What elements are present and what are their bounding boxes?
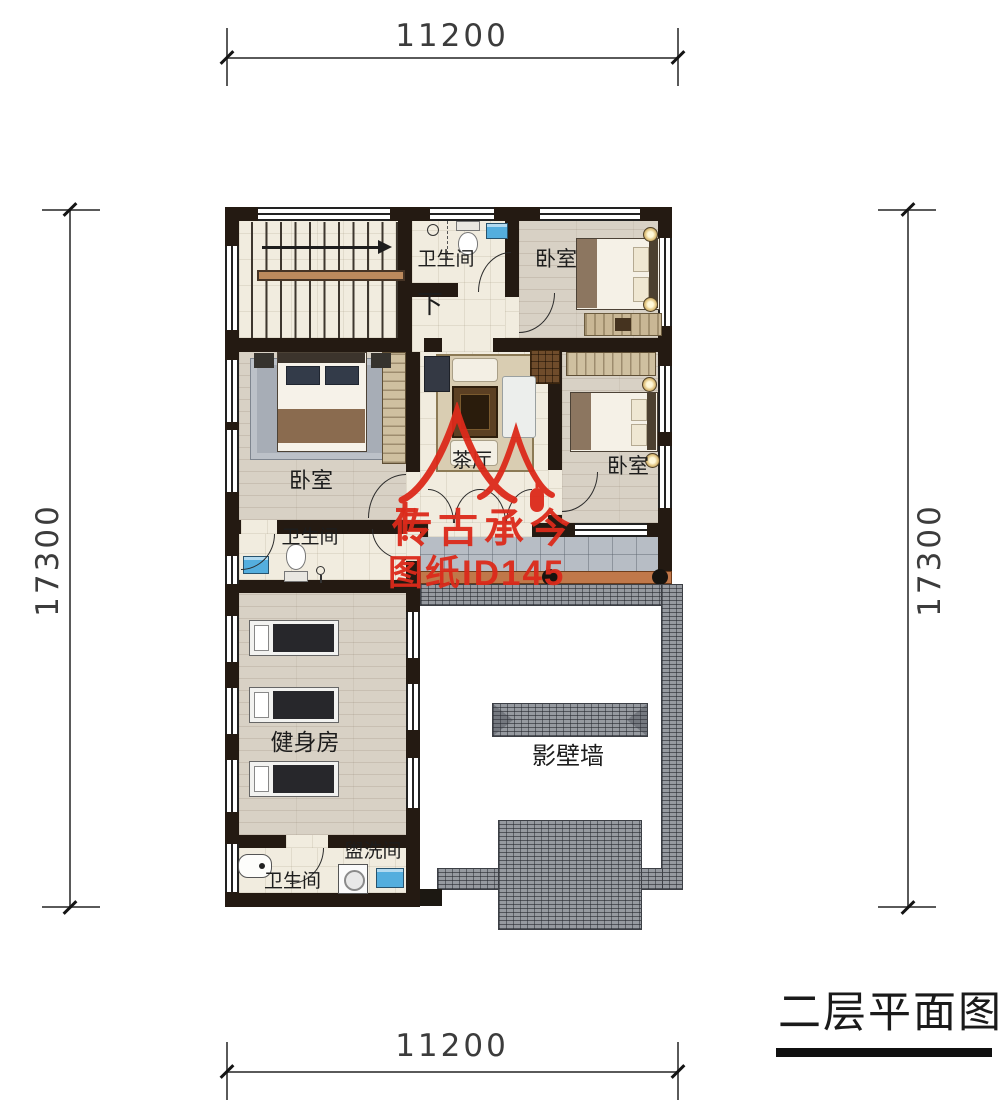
dresser-mirror [615, 318, 631, 331]
bed-pillow [631, 424, 647, 446]
closet-mid-right [566, 352, 656, 376]
washing-machine [338, 864, 368, 894]
dim-value-top: 11200 [352, 18, 552, 54]
bed-headboard [647, 393, 656, 450]
bed-mid-right [570, 392, 658, 452]
treadmill [249, 620, 339, 656]
dim-value-left: 17300 [30, 460, 66, 660]
room-label-bath-bottom: 卫生间 [250, 872, 335, 893]
screen-wall-hip [627, 704, 647, 736]
window-left-stairs [225, 246, 239, 330]
bathtub-drain [259, 863, 265, 869]
tea-seat [452, 358, 498, 382]
screen-wall-hip [493, 704, 513, 736]
floor-plan-page: 卫生间 下 卧室 卧室 茶厅 卧室 卫生间 健身房 盥洗间 卫生间 影壁墙 传古… [0, 0, 1000, 1114]
window-gym-east-a [406, 612, 420, 658]
window-top-stairs [258, 207, 390, 221]
bed-pillow [631, 399, 647, 421]
wall-stub [420, 889, 442, 906]
window-top-bath [430, 207, 494, 221]
stair-direction-line [262, 246, 380, 249]
room-label-bedroom-mid-right: 卧室 [588, 455, 668, 478]
nightstand [371, 353, 391, 368]
bed-pillow [286, 366, 320, 385]
bed-master [277, 352, 367, 452]
room-label-bath-mid: 卫生间 [270, 528, 350, 549]
toilet-tank [456, 221, 480, 231]
window-left-master-a [225, 360, 239, 422]
screen-wall-roof [492, 703, 648, 737]
shower-icon [427, 224, 439, 236]
towel-hook-icon [316, 566, 325, 575]
stair-direction-arrow-icon [378, 240, 392, 254]
railing-post-icon [652, 569, 668, 585]
treadmill [249, 687, 339, 723]
window-right-bedroom-mid-a [658, 366, 672, 432]
window-gym-east-c [406, 758, 420, 808]
dim-line-top [227, 57, 679, 59]
room-label-down: 下 [410, 290, 450, 319]
window-left-bath-mid [225, 556, 239, 584]
towel-hook-stem [320, 575, 322, 583]
room-label-gym: 健身房 [255, 730, 355, 755]
bed-pillow [325, 366, 359, 385]
doorway-bedroom-top [505, 297, 519, 338]
wall-hall-north-pier-a [424, 338, 442, 352]
nightstand [254, 353, 274, 368]
sink-top-bath [486, 223, 508, 239]
roof-strip-right [661, 584, 683, 890]
room-label-bath-top: 卫生间 [406, 250, 486, 271]
doorway-laundry [286, 835, 328, 848]
room-label-bedroom-master: 卧室 [271, 469, 351, 493]
lamp-icon [642, 377, 657, 392]
dim-line-left [69, 210, 71, 908]
treadmill [249, 761, 339, 797]
window-top-bedroom [540, 207, 640, 221]
dim-line-bottom [227, 1071, 679, 1073]
lamp-icon [643, 297, 658, 312]
room-label-screen-wall: 影壁墙 [518, 744, 618, 770]
cabinet-dark [424, 356, 450, 392]
stair-handrail [257, 270, 405, 281]
dim-line-right [907, 210, 909, 908]
window-left-gym-a [225, 616, 239, 662]
window-south-bedroom-mid [575, 523, 647, 537]
window-left-gym-c [225, 760, 239, 812]
dim-value-bottom: 11200 [352, 1028, 552, 1064]
window-left-master-b [225, 430, 239, 492]
window-gym-east-b [406, 684, 420, 730]
sink-laundry [376, 868, 404, 888]
bed-pillow [633, 247, 649, 272]
bed-headboard [278, 353, 365, 363]
roof-block-bottom [498, 820, 642, 930]
watermark-sheet-id: 图纸ID145 [388, 545, 565, 596]
plan-title: 二层平面图 [778, 990, 993, 1037]
toilet-mid [282, 544, 310, 582]
title-underline [776, 1048, 992, 1057]
lamp-icon [643, 227, 658, 242]
window-left-bath-bottom [225, 844, 239, 892]
dim-value-right: 17300 [912, 460, 948, 660]
dresser-top-right [584, 313, 662, 336]
window-left-gym-b [225, 688, 239, 734]
bed-blanket [571, 393, 591, 450]
toilet-tank [284, 571, 308, 582]
bed-blanket [278, 409, 365, 443]
room-label-laundry: 盥洗间 [328, 842, 418, 863]
room-label-bedroom-top-right: 卧室 [516, 248, 596, 271]
